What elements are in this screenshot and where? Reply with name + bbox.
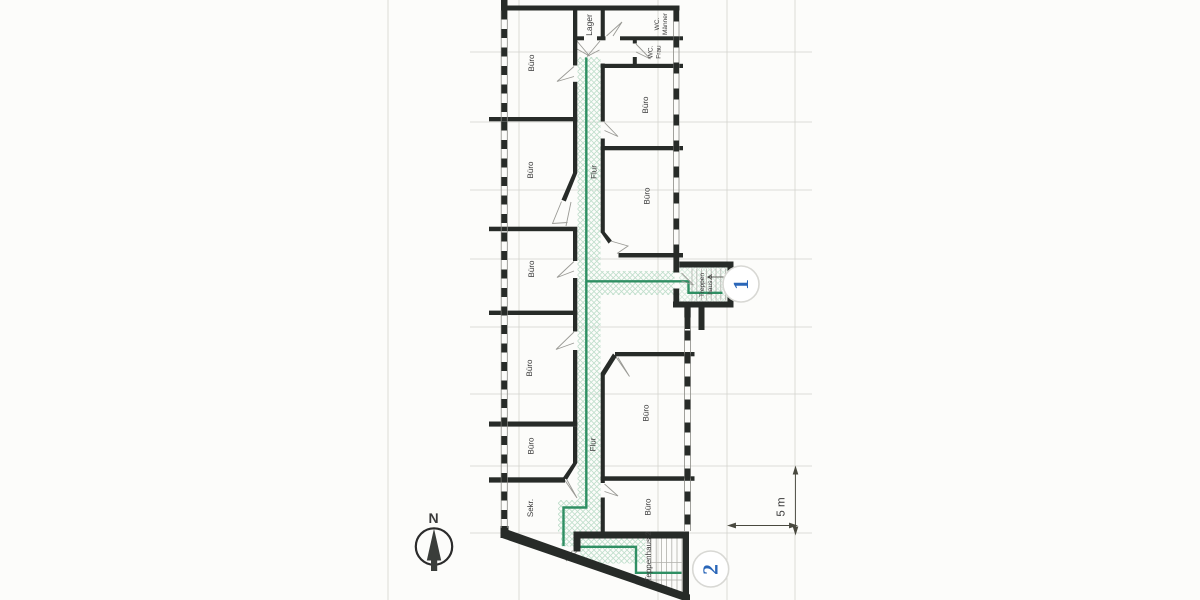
svg-text:Büro: Büro [526, 161, 535, 178]
svg-text:5 m: 5 m [776, 497, 788, 516]
svg-text:Büro: Büro [644, 498, 653, 515]
svg-text:Sekr.: Sekr. [526, 499, 535, 517]
svg-text:Flur: Flur [590, 165, 599, 179]
svg-text:Frau: Frau [656, 45, 663, 59]
svg-text:WC.: WC. [654, 17, 661, 30]
svg-text:Büro: Büro [641, 96, 650, 113]
svg-text:Büro: Büro [527, 54, 536, 71]
svg-text:haus 1: haus 1 [707, 275, 714, 295]
svg-text:Büro: Büro [527, 437, 536, 454]
svg-text:2: 2 [699, 564, 723, 575]
svg-text:Büro: Büro [643, 187, 652, 204]
svg-text:Treppen: Treppen [699, 273, 706, 297]
svg-text:Flur: Flur [589, 437, 598, 451]
svg-text:Büro: Büro [527, 260, 536, 277]
svg-text:Männer: Männer [662, 12, 669, 35]
svg-text:Lager: Lager [584, 14, 594, 36]
svg-text:N: N [428, 510, 438, 526]
svg-text:Büro: Büro [525, 359, 534, 376]
svg-text:Büro: Büro [642, 404, 651, 421]
svg-text:WC.: WC. [648, 45, 655, 58]
svg-text:Teppenhaus 2: Teppenhaus 2 [644, 531, 653, 582]
svg-text:1: 1 [729, 279, 753, 290]
